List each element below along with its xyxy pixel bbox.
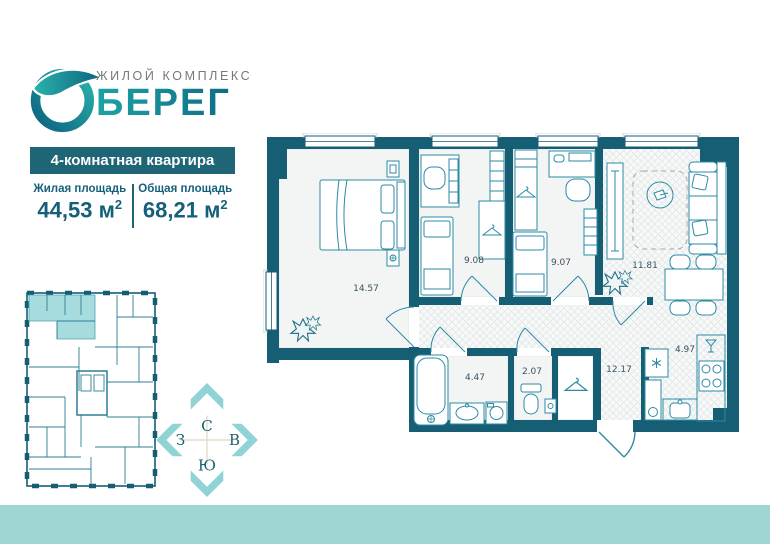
room-area-label: 9.07 <box>551 258 571 268</box>
socket-box <box>387 250 399 266</box>
bed-9-08 <box>421 217 453 295</box>
area-summary: Жилая площадь 44,53 м2 Общая площадь 68,… <box>30 180 235 232</box>
area-divider <box>132 184 134 228</box>
room-area-label: 4.47 <box>465 373 485 383</box>
window-icon <box>303 133 377 147</box>
bathtub <box>414 355 448 425</box>
north-arrow-icon <box>191 383 224 409</box>
living-area-sup: 2 <box>115 197 122 212</box>
desk-9-08 <box>421 155 459 207</box>
wc-sink <box>545 399 556 413</box>
bed-9-07 <box>513 232 547 296</box>
compass-north: С <box>201 417 213 435</box>
entrance-door-icon <box>599 432 635 457</box>
window-icon <box>263 270 277 332</box>
flyer-page: { "brand": { "complex_label": "ЖИЛОЙ КОМ… <box>0 0 770 544</box>
shelf-9-08 <box>490 151 504 201</box>
total-area-block: Общая площадь 68,21 м2 <box>136 180 236 232</box>
fridge <box>645 349 668 377</box>
sofa <box>689 162 726 254</box>
total-area-value: 68,21 м <box>143 197 220 222</box>
kitchen-cabinet <box>645 380 661 420</box>
bathroom-sink <box>450 403 484 424</box>
wardrobe-9-07 <box>515 150 537 230</box>
wall-tv <box>387 161 399 177</box>
room-area-label: 11.81 <box>632 261 658 271</box>
compass-east: В <box>229 431 240 449</box>
room-area-label: 4.97 <box>675 345 695 355</box>
window-icon <box>623 133 700 147</box>
highlighted-unit <box>29 295 95 339</box>
living-area-value: 44,53 м <box>37 197 114 222</box>
brand-logo-icon <box>26 57 104 137</box>
compass-west: З <box>176 431 186 449</box>
toilet <box>521 384 541 414</box>
washing-machine <box>486 402 507 424</box>
brand-logo: ЖИЛОЙ КОМПЛЕКС БЕРЕГ <box>26 55 256 137</box>
building-level-plan <box>20 287 162 492</box>
total-area-sup: 2 <box>220 197 227 212</box>
room-area-label: 2.07 <box>522 367 542 377</box>
footer-band <box>0 505 770 544</box>
room-area-label: 12.17 <box>606 365 632 375</box>
brand-name: БЕРЕГ <box>96 84 256 122</box>
window-icon <box>536 133 600 147</box>
shelf-9-07 <box>584 209 597 255</box>
living-area-block: Жилая площадь 44,53 м2 <box>30 180 130 232</box>
apartment-floor-plan: 14.57 9.08 9.07 11.81 12.17 4.97 4.47 2.… <box>263 133 743 478</box>
sliding-wardrobe <box>607 163 623 259</box>
double-bed <box>320 180 405 250</box>
total-area-label: Общая площадь <box>136 183 236 195</box>
compass: С В Ю З <box>156 381 258 499</box>
stove-icon <box>699 361 724 391</box>
apartment-type-chip: 4-комнатная квартира <box>30 147 235 174</box>
living-area-label: Жилая площадь <box>30 183 130 195</box>
wardrobe-9-08 <box>479 201 505 259</box>
room-area-label: 14.57 <box>353 284 379 294</box>
apartment-type-label: 4-комнатная квартира <box>51 152 215 169</box>
window-icon <box>430 133 500 147</box>
compass-south: Ю <box>198 457 216 475</box>
brand-complex-label: ЖИЛОЙ КОМПЛЕКС <box>96 69 256 83</box>
room-area-label: 9.08 <box>464 256 484 266</box>
